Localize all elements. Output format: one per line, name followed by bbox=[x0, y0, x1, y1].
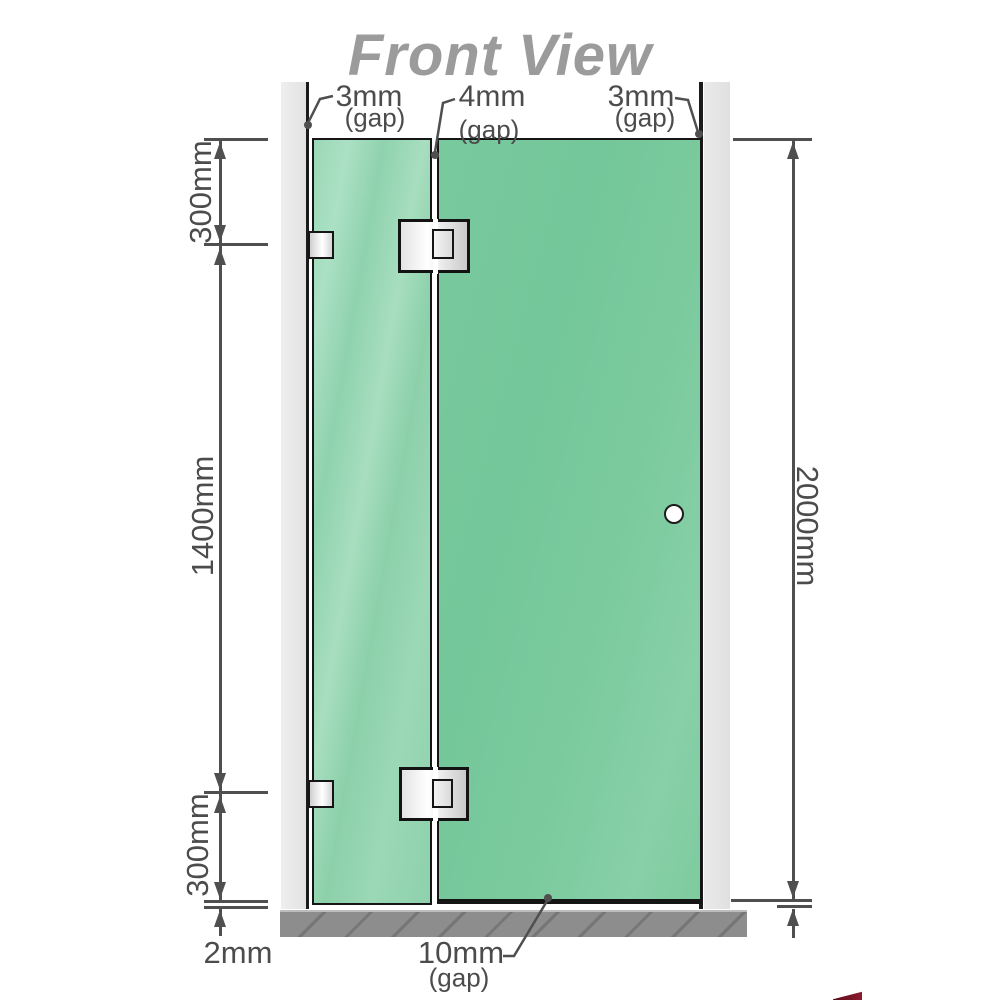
dim-arrow bbox=[214, 910, 226, 927]
dim-arrow bbox=[214, 773, 226, 790]
wall-bracket-bottom bbox=[308, 780, 334, 808]
wall-channel-right bbox=[704, 82, 730, 909]
dim-label-overall-2000: 2000mm bbox=[789, 466, 825, 587]
gap-bottom-note: (gap) bbox=[429, 963, 490, 994]
dim-tick bbox=[731, 899, 812, 902]
dim-tick bbox=[777, 905, 812, 908]
hinge-clamp-plate-bottom bbox=[432, 779, 453, 808]
dim-label-middle-1400: 1400mm bbox=[185, 456, 221, 577]
dim-arrow bbox=[214, 248, 226, 265]
front-view-diagram: Front View bbox=[0, 0, 1000, 1000]
hinge-clamp-plate-top bbox=[432, 229, 454, 259]
floor-base bbox=[280, 910, 747, 937]
leader-gap-top-left bbox=[308, 96, 333, 123]
gap-top-right-note: (gap) bbox=[615, 103, 676, 134]
dim-label-floor-2mm: 2mm bbox=[204, 935, 273, 971]
gap-top-left-note: (gap) bbox=[345, 103, 406, 134]
logo-fragment bbox=[833, 991, 862, 1000]
dim-label-upper-300: 300mm bbox=[183, 140, 219, 243]
door-handle-knob bbox=[664, 504, 684, 524]
dim-label-lower-300: 300mm bbox=[180, 793, 216, 896]
dim-tick bbox=[204, 900, 268, 903]
diagram-title: Front View bbox=[0, 22, 1000, 89]
wall-channel-left bbox=[281, 82, 306, 909]
wall-bracket-top bbox=[308, 231, 334, 259]
gap-top-middle-label: 4mm bbox=[459, 80, 526, 114]
dim-arrow bbox=[787, 909, 799, 926]
panel-gap-strip bbox=[433, 257, 438, 274]
dim-arrow bbox=[787, 142, 799, 159]
gap-top-middle-note: (gap) bbox=[459, 115, 520, 146]
dim-tick bbox=[204, 906, 268, 909]
leader-gap-top-right bbox=[675, 98, 698, 132]
dim-arrow bbox=[787, 881, 799, 898]
door-glass-panel bbox=[437, 138, 702, 904]
panel-gap-strip bbox=[433, 806, 438, 821]
dim-tick bbox=[733, 138, 812, 141]
